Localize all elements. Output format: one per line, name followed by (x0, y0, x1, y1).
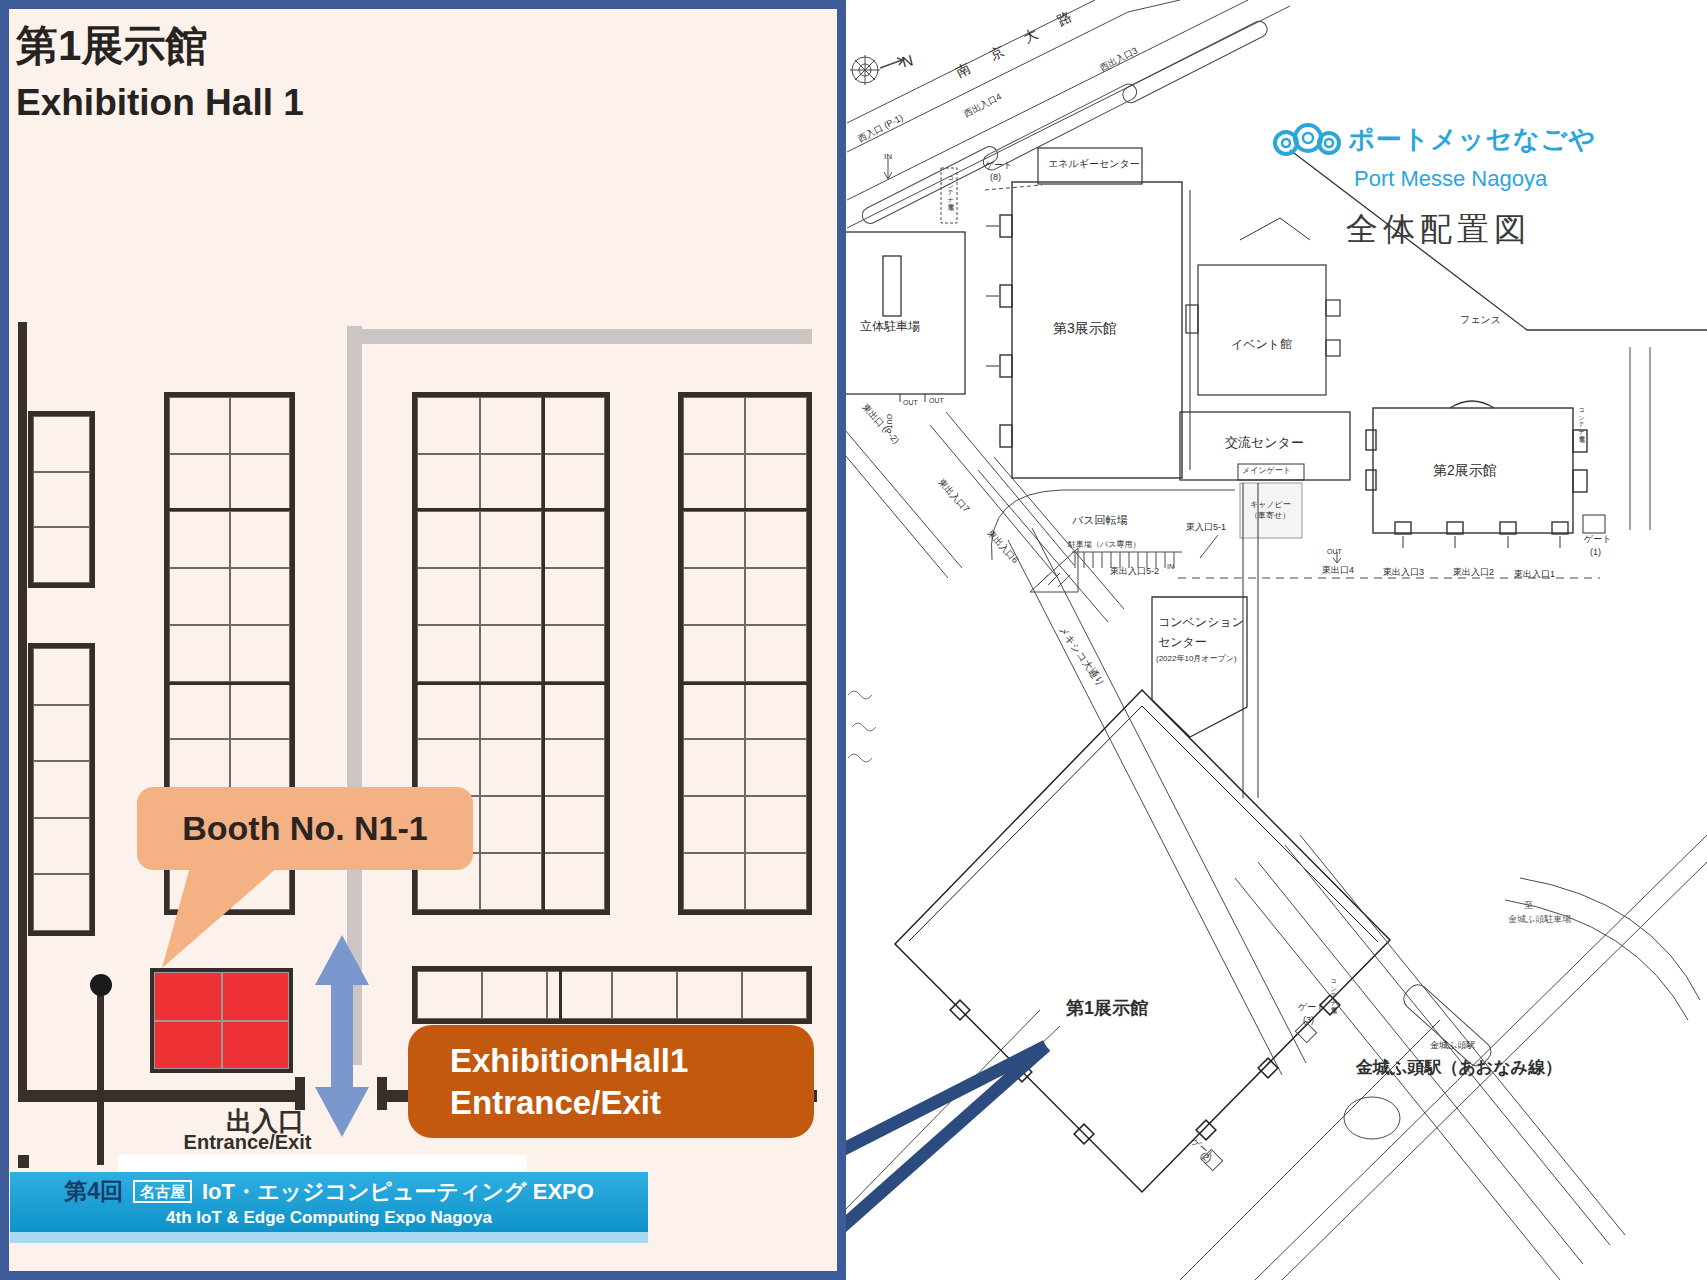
booth-cell (33, 818, 90, 875)
logo-title-en: Port Messe Nagoya (1354, 166, 1547, 192)
booth-cell (480, 739, 543, 796)
booth-cell (542, 796, 605, 853)
road-east7 (930, 412, 1074, 578)
road-mexico (1008, 528, 1306, 1075)
booth-cell (230, 568, 291, 625)
expo-banner: 第4回 名古屋 IoT・エッジコンピューティング EXPO 4th IoT & … (10, 1172, 648, 1232)
in-arrow (884, 158, 892, 179)
gate8-line (985, 185, 1042, 190)
booth-cell (480, 853, 543, 910)
booth-cell (542, 739, 605, 796)
booth-cell (683, 568, 745, 625)
booth-cell (745, 853, 807, 910)
banner-city-badge: 名古屋 (133, 1180, 192, 1204)
booth-cell (169, 682, 230, 739)
booth-cell (169, 625, 230, 682)
out-arrow (1333, 552, 1341, 563)
booth-n1-1-cell (222, 1021, 290, 1070)
pillar-marker (90, 974, 112, 996)
booth-n1-1 (150, 968, 293, 1073)
road-ramp (981, 81, 1140, 172)
booth-block (28, 643, 95, 936)
road-ramp (860, 144, 1001, 226)
building-exchange-center (1180, 412, 1350, 480)
booth-cell (683, 739, 745, 796)
booth-cell (169, 511, 230, 568)
panel-title-jp: 第1展示館 (16, 18, 207, 74)
booth-cell (542, 454, 605, 511)
booth-cell (542, 682, 605, 739)
water-marks (848, 691, 876, 762)
banner-title-en: 4th IoT & Edge Computing Expo Nagoya (166, 1208, 492, 1228)
booth-cell (547, 971, 612, 1019)
building-hall2 (1366, 401, 1587, 548)
booth-cell (33, 874, 90, 931)
booth-cell (230, 625, 291, 682)
booth-cell (417, 568, 480, 625)
booth-cell (677, 971, 742, 1019)
entrance-direction-arrow (297, 927, 387, 1142)
entrance-box-line1: ExhibitionHall1 (450, 1040, 814, 1081)
booth-block (28, 411, 95, 588)
building-hall3 (986, 182, 1190, 478)
hall-wall-bottom-left (18, 1090, 305, 1102)
white-spacer (118, 1155, 527, 1173)
banner-title-jp: IoT・エッジコンピューティング EXPO (202, 1177, 594, 1207)
booth-block-entrance-row (412, 966, 812, 1024)
railway-and-roads (845, 835, 1707, 1280)
booth-cell (417, 454, 480, 511)
overall-map-title: 全体配置図 (1346, 208, 1531, 252)
road-east6 (978, 457, 1124, 622)
booth-cell (480, 454, 543, 511)
booth-cell (230, 454, 291, 511)
booth-cell (745, 397, 807, 454)
banner-edition: 第4回 (64, 1176, 123, 1207)
booth-cell (33, 527, 90, 583)
logo-title-jp: ポートメッセなごや (1348, 122, 1596, 157)
hall-wall-left (18, 322, 27, 1102)
booth-cell (683, 796, 745, 853)
main-gate-box (1238, 464, 1304, 480)
booth-cell (230, 397, 291, 454)
booth-n1-1-cell (154, 972, 222, 1021)
booth-cell (683, 853, 745, 910)
interior-wall-line (97, 995, 104, 1165)
road-p2 (845, 430, 962, 578)
booth-cell (745, 511, 807, 568)
port-messe-logo-icon (1275, 125, 1339, 154)
booth-cell (480, 397, 543, 454)
road-nankin-3 (847, 0, 1248, 200)
booth-cell (169, 397, 230, 454)
booth-cell (745, 568, 807, 625)
booth-cell (742, 971, 807, 1019)
booth-cell (480, 511, 543, 568)
booth-cell (417, 971, 482, 1019)
booth-cell (745, 625, 807, 682)
building-parking-deck (845, 232, 965, 402)
road-nankin-2 (847, 0, 1180, 152)
booth-cell (683, 511, 745, 568)
canopy-box (1240, 483, 1302, 538)
booth-cell (417, 397, 480, 454)
booth-callout: Booth No. N1-1 (137, 787, 473, 870)
booth-cell (745, 739, 807, 796)
booth-cell (480, 625, 543, 682)
booth-cell (542, 625, 605, 682)
booth-cell (417, 682, 480, 739)
booth-cell (683, 682, 745, 739)
booth-n1-1-cell (222, 972, 290, 1021)
booth-cell (33, 648, 90, 705)
booth-cell (33, 705, 90, 762)
booth-cell (33, 761, 90, 818)
road-nankin-1 (847, 0, 1095, 123)
east-road (1630, 347, 1650, 530)
booth-cell (482, 971, 547, 1019)
booth-cell (230, 682, 291, 739)
building-event-hall (1186, 218, 1340, 395)
wall-stub (18, 1155, 29, 1168)
booth-cell (542, 853, 605, 910)
booth-cell (745, 796, 807, 853)
bus-parking-comb (1072, 552, 1182, 568)
booth-cell (542, 568, 605, 625)
booth-cell (542, 511, 605, 568)
entrance-box-line2: Entrance/Exit (450, 1082, 814, 1123)
booth-callout-tail (150, 865, 280, 970)
booth-cell (480, 796, 543, 853)
compass-icon (850, 55, 903, 85)
booth-cell (33, 416, 90, 472)
booth-cell (417, 511, 480, 568)
booth-cell (745, 682, 807, 739)
booth-cell (169, 454, 230, 511)
booth-cell (169, 568, 230, 625)
road-ramp (1120, 19, 1270, 106)
booth-block (678, 392, 812, 915)
booth-cell (683, 454, 745, 511)
booth-cell (480, 682, 543, 739)
banner-bottom-strip (10, 1232, 648, 1243)
screenshot-root: N南 京 大 路西出入口3西出入口4西入口 (P-1)INゲート(8)エネルギー… (0, 0, 1707, 1280)
booth-cell (33, 472, 90, 528)
booth-n1-1-cell (154, 1021, 222, 1070)
booth-cell (230, 511, 291, 568)
aisle-horizontal (352, 329, 812, 344)
booth-cell (542, 397, 605, 454)
road-nankin-4 (847, 6, 1290, 228)
booth-cell (683, 625, 745, 682)
bus-turnaround (991, 490, 1235, 560)
building-convention-center (1152, 597, 1247, 737)
booth-cell (480, 568, 543, 625)
panel-title-en: Exhibition Hall 1 (16, 82, 304, 124)
booth-cell (683, 397, 745, 454)
leader-line (1200, 535, 1218, 558)
entrance-label-en: Entrance/Exit (180, 1131, 315, 1154)
booth-cell (417, 625, 480, 682)
building-energy-center (1038, 148, 1142, 184)
booth-cell (745, 454, 807, 511)
entrance-exit-box: ExhibitionHall1 Entrance/Exit (408, 1025, 814, 1138)
booth-cell (612, 971, 677, 1019)
